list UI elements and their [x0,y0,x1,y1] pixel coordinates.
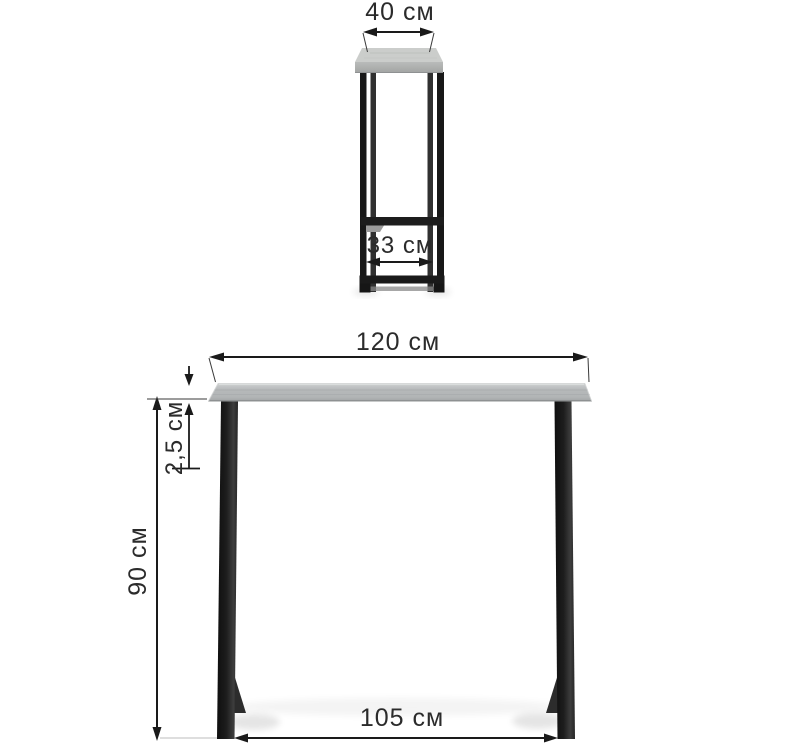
front-view-dimensions [147,353,589,743]
arrowhead-down-icon [153,727,162,741]
side-bottom-bar-far [368,287,436,292]
dim-label-top-depth: 40 см [338,0,462,24]
side-leg-post-back-right [428,72,434,292]
ext-line-top-length-left [209,358,216,382]
arrowhead-right-icon [420,28,434,37]
front-view-figure [208,383,592,739]
dim-label-inner-depth: 33 см [338,234,462,258]
arrowhead-left-icon [234,734,248,743]
side-stretcher-bar [361,217,444,226]
arrowhead-right-icon [544,734,558,743]
front-leg-left [217,402,238,740]
side-bottom-bar [360,276,445,284]
arrowhead-left-icon [363,28,377,37]
side-foot-right [434,284,445,293]
ext-line-top-length-right [588,358,589,382]
side-tabletop-front-edge [355,62,443,73]
side-foot-left [360,284,371,293]
dim-label-top-length: 120 см [318,330,478,354]
front-tabletop [208,383,592,402]
foot-shadow-right [512,713,564,729]
dim-label-leg-span: 105 см [322,706,482,730]
dim-label-height: 90 см [126,501,150,621]
back-foot-right [546,676,558,713]
side-leg-post-back-left [371,72,377,292]
diagram-canvas: 40 см 33 см 120 см 2,5 см 90 см 105 см [0,0,800,753]
arrowhead-left-icon [209,353,224,362]
arrowhead-right-icon [573,353,588,362]
front-leg-right [555,402,576,740]
side-leg-post-front-right [437,72,444,292]
dimension-drawing [0,0,800,753]
foot-shadow-left [228,714,280,730]
back-foot-left [234,676,246,713]
dim-label-thickness: 2,5 см [163,383,187,493]
side-leg-post-front-left [360,72,367,292]
